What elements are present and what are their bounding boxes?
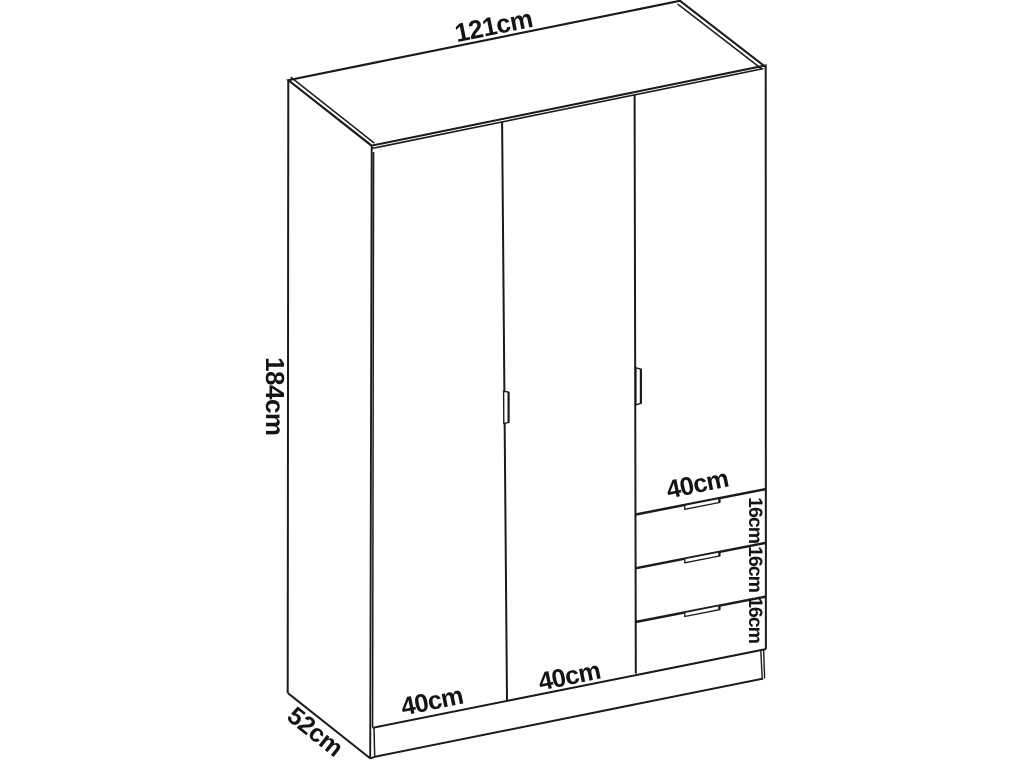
svg-text:40cm: 40cm [536, 657, 603, 697]
svg-text:16cm: 16cm [744, 497, 766, 544]
svg-text:184cm: 184cm [260, 357, 290, 435]
svg-text:40cm: 40cm [399, 682, 466, 722]
svg-text:16cm: 16cm [744, 597, 766, 644]
svg-text:16cm: 16cm [744, 546, 766, 593]
svg-text:52cm: 52cm [282, 702, 349, 763]
